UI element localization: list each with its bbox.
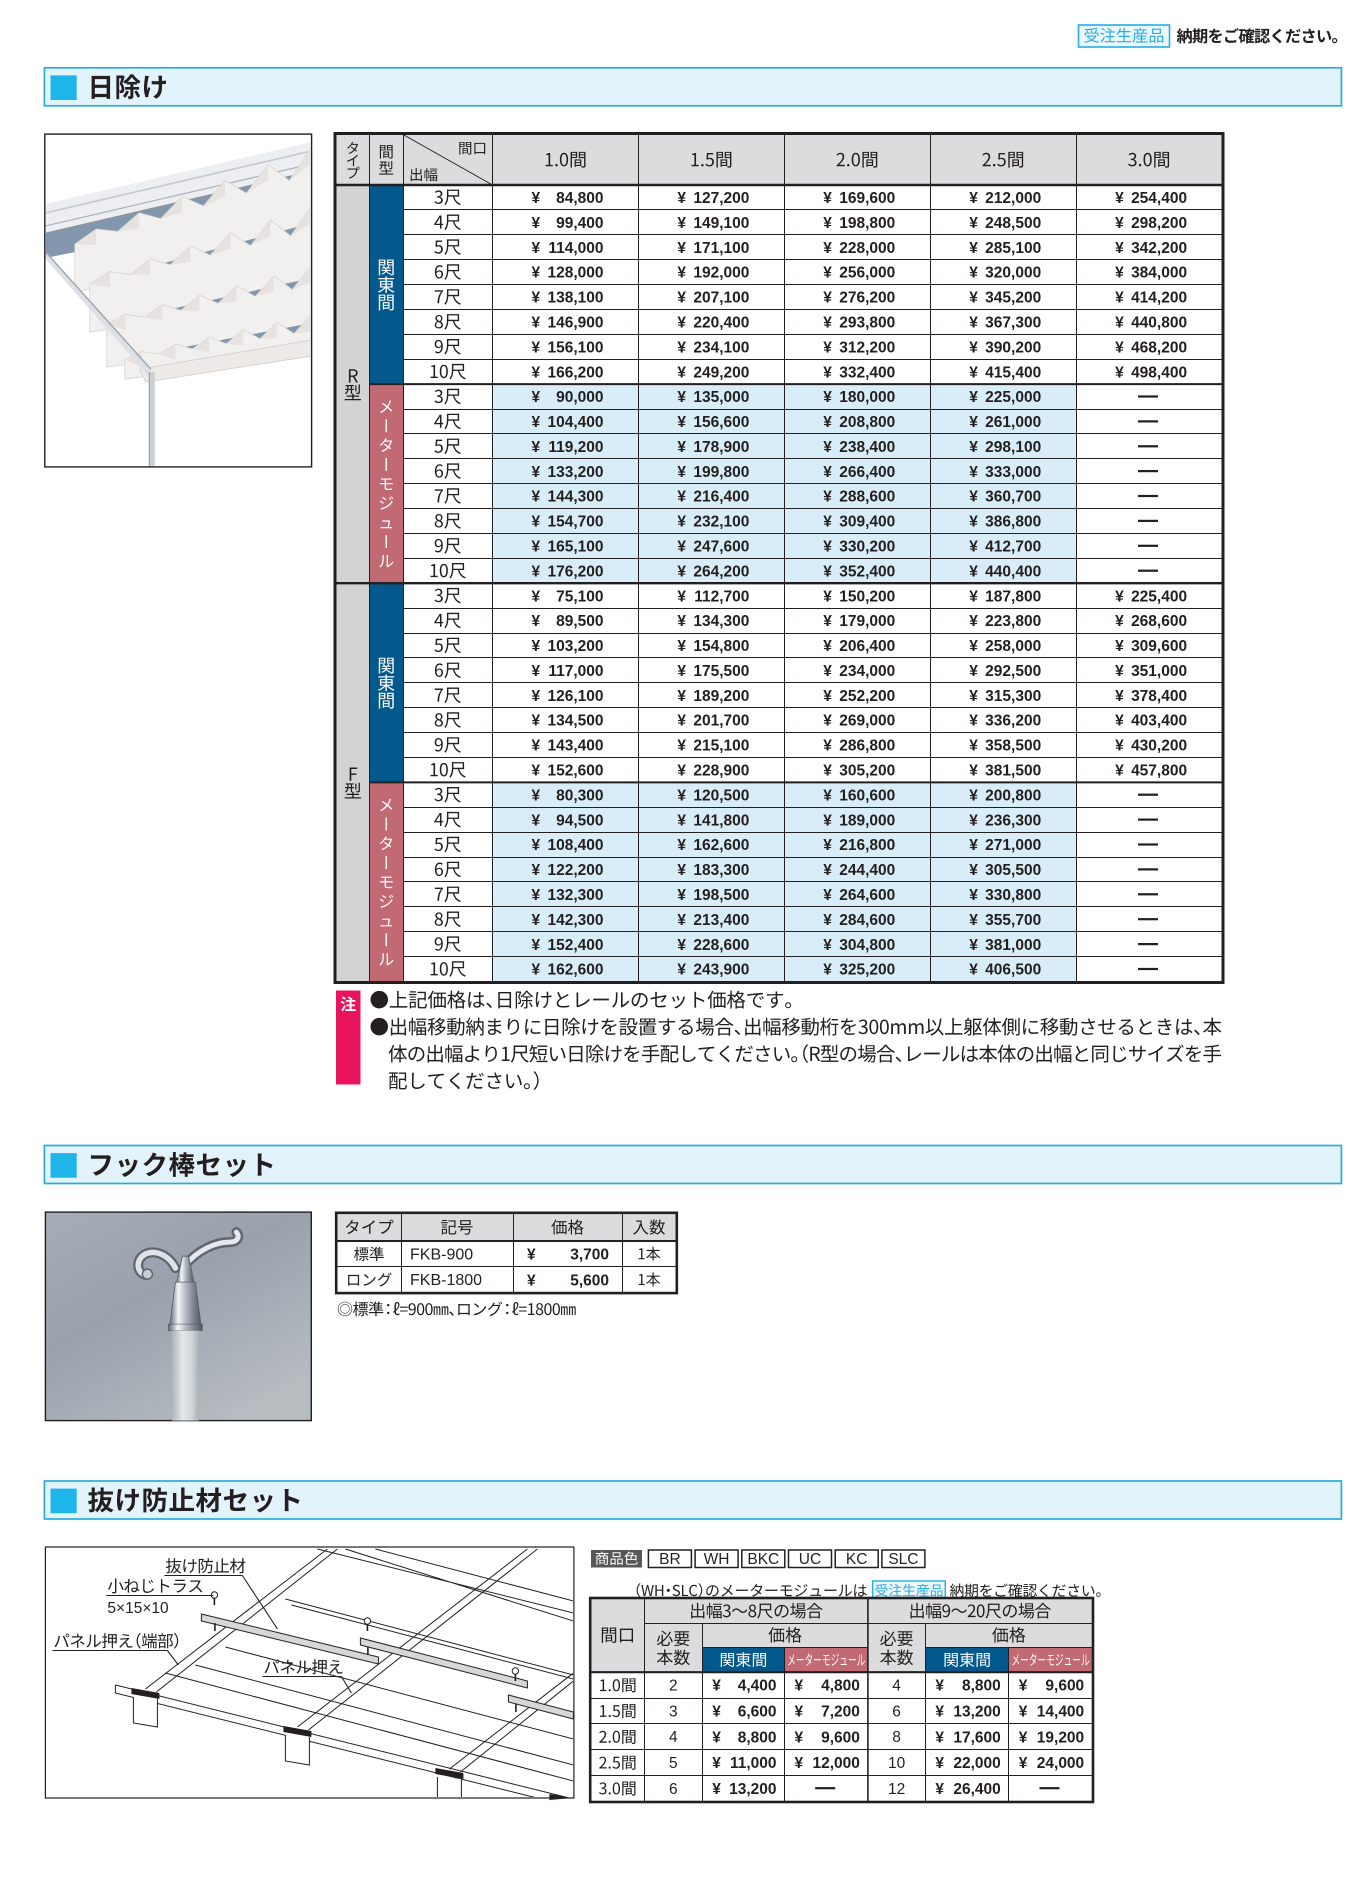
svg-text:198,500: 198,500 bbox=[693, 887, 749, 904]
svg-text:FKB-900: FKB-900 bbox=[410, 1246, 473, 1263]
svg-text:¥: ¥ bbox=[677, 364, 686, 381]
svg-text:252,200: 252,200 bbox=[839, 688, 895, 705]
svg-text:367,300: 367,300 bbox=[985, 315, 1041, 332]
svg-text:120,500: 120,500 bbox=[693, 787, 749, 804]
svg-text:¥: ¥ bbox=[1115, 713, 1124, 730]
svg-text:¥: ¥ bbox=[823, 837, 832, 854]
svg-text:¥: ¥ bbox=[823, 613, 832, 630]
svg-text:381,500: 381,500 bbox=[985, 763, 1041, 780]
svg-text:99,400: 99,400 bbox=[556, 215, 603, 232]
svg-text:¥: ¥ bbox=[823, 539, 832, 556]
svg-text:¥: ¥ bbox=[823, 464, 832, 481]
svg-text:293,800: 293,800 bbox=[839, 315, 895, 332]
svg-text:¥: ¥ bbox=[677, 489, 686, 506]
svg-text:8: 8 bbox=[892, 1729, 901, 1746]
svg-text:¥: ¥ bbox=[1019, 1678, 1028, 1695]
svg-text:¥: ¥ bbox=[969, 190, 978, 207]
svg-text:183,300: 183,300 bbox=[693, 862, 749, 879]
svg-text:¥: ¥ bbox=[823, 663, 832, 680]
svg-text:¥: ¥ bbox=[712, 1704, 721, 1721]
svg-text:122,200: 122,200 bbox=[547, 862, 603, 879]
svg-text:268,600: 268,600 bbox=[1131, 613, 1187, 630]
svg-text:22,000: 22,000 bbox=[953, 1755, 1000, 1772]
svg-text:¥: ¥ bbox=[1115, 638, 1124, 655]
svg-text:198,800: 198,800 bbox=[839, 215, 895, 232]
svg-text:276,200: 276,200 bbox=[839, 290, 895, 307]
svg-text:223,800: 223,800 bbox=[985, 613, 1041, 630]
svg-text:¥: ¥ bbox=[677, 613, 686, 630]
svg-text:228,000: 228,000 bbox=[839, 240, 895, 257]
svg-text:360,700: 360,700 bbox=[985, 489, 1041, 506]
svg-text:¥: ¥ bbox=[527, 1247, 536, 1264]
svg-text:¥: ¥ bbox=[677, 862, 686, 879]
svg-text:¥: ¥ bbox=[1115, 688, 1124, 705]
svg-text:¥: ¥ bbox=[677, 215, 686, 232]
svg-text:¥: ¥ bbox=[823, 563, 832, 580]
svg-text:¥: ¥ bbox=[969, 862, 978, 879]
svg-text:¥: ¥ bbox=[823, 389, 832, 406]
svg-text:119,200: 119,200 bbox=[548, 439, 603, 456]
svg-text:¥: ¥ bbox=[795, 1678, 804, 1695]
svg-text:249,200: 249,200 bbox=[693, 364, 749, 381]
svg-text:298,200: 298,200 bbox=[1131, 215, 1187, 232]
svg-text:17,600: 17,600 bbox=[953, 1729, 1000, 1746]
svg-text:UC: UC bbox=[799, 1551, 821, 1568]
svg-text:¥: ¥ bbox=[823, 414, 832, 431]
svg-text:¥: ¥ bbox=[677, 787, 686, 804]
svg-text:FKB-1800: FKB-1800 bbox=[410, 1272, 482, 1289]
svg-text:¥: ¥ bbox=[969, 887, 978, 904]
svg-text:244,400: 244,400 bbox=[839, 862, 895, 879]
svg-text:180,000: 180,000 bbox=[839, 389, 895, 406]
svg-text:90,000: 90,000 bbox=[556, 389, 603, 406]
svg-text:132,300: 132,300 bbox=[547, 887, 603, 904]
svg-text:¥: ¥ bbox=[532, 464, 541, 481]
svg-text:¥: ¥ bbox=[712, 1678, 721, 1695]
svg-text:¥: ¥ bbox=[1115, 339, 1124, 356]
svg-text:¥: ¥ bbox=[532, 240, 541, 257]
svg-text:440,400: 440,400 bbox=[985, 563, 1041, 580]
svg-text:¥: ¥ bbox=[1115, 265, 1124, 282]
svg-text:¥: ¥ bbox=[969, 563, 978, 580]
svg-text:304,800: 304,800 bbox=[839, 937, 895, 954]
svg-text:403,400: 403,400 bbox=[1131, 713, 1187, 730]
svg-text:381,000: 381,000 bbox=[985, 937, 1041, 954]
svg-text:94,500: 94,500 bbox=[556, 812, 603, 829]
svg-text:414,200: 414,200 bbox=[1131, 290, 1187, 307]
svg-text:4: 4 bbox=[669, 1729, 678, 1746]
svg-text:¥: ¥ bbox=[532, 962, 541, 979]
svg-text:¥: ¥ bbox=[1115, 290, 1124, 307]
svg-text:¥: ¥ bbox=[677, 962, 686, 979]
svg-text:84,800: 84,800 bbox=[556, 190, 603, 207]
svg-text:¥: ¥ bbox=[532, 937, 541, 954]
svg-text:¥: ¥ bbox=[532, 763, 541, 780]
svg-text:234,000: 234,000 bbox=[839, 663, 895, 680]
svg-text:¥: ¥ bbox=[823, 937, 832, 954]
svg-text:201,700: 201,700 bbox=[693, 713, 749, 730]
svg-text:178,900: 178,900 bbox=[693, 439, 749, 456]
svg-text:5×15×10: 5×15×10 bbox=[107, 1600, 169, 1617]
svg-text:309,400: 309,400 bbox=[839, 514, 895, 531]
svg-text:¥: ¥ bbox=[969, 812, 978, 829]
svg-text:3: 3 bbox=[669, 1703, 678, 1720]
svg-text:¥: ¥ bbox=[532, 265, 541, 282]
svg-text:¥: ¥ bbox=[677, 937, 686, 954]
svg-text:228,900: 228,900 bbox=[693, 763, 749, 780]
svg-text:12,000: 12,000 bbox=[812, 1755, 859, 1772]
svg-text:¥: ¥ bbox=[823, 439, 832, 456]
svg-text:¥: ¥ bbox=[532, 663, 541, 680]
svg-text:¥: ¥ bbox=[969, 364, 978, 381]
svg-text:234,100: 234,100 bbox=[693, 339, 749, 356]
svg-text:¥: ¥ bbox=[532, 787, 541, 804]
svg-text:¥: ¥ bbox=[677, 812, 686, 829]
svg-text:¥: ¥ bbox=[935, 1678, 944, 1695]
svg-text:¥: ¥ bbox=[532, 489, 541, 506]
svg-text:¥: ¥ bbox=[527, 1272, 536, 1289]
svg-text:103,200: 103,200 bbox=[547, 638, 603, 655]
svg-text:¥: ¥ bbox=[532, 439, 541, 456]
svg-text:¥: ¥ bbox=[823, 763, 832, 780]
svg-text:351,000: 351,000 bbox=[1131, 663, 1187, 680]
svg-text:199,800: 199,800 bbox=[693, 464, 749, 481]
svg-text:¥: ¥ bbox=[532, 638, 541, 655]
svg-text:¥: ¥ bbox=[1115, 663, 1124, 680]
svg-text:¥: ¥ bbox=[677, 464, 686, 481]
svg-text:¥: ¥ bbox=[823, 688, 832, 705]
svg-text:¥: ¥ bbox=[677, 887, 686, 904]
svg-text:208,800: 208,800 bbox=[839, 414, 895, 431]
svg-text:156,600: 156,600 bbox=[693, 414, 749, 431]
svg-text:¥: ¥ bbox=[969, 389, 978, 406]
svg-text:162,600: 162,600 bbox=[547, 962, 603, 979]
svg-text:SLC: SLC bbox=[888, 1551, 918, 1568]
svg-text:¥: ¥ bbox=[969, 962, 978, 979]
svg-text:¥: ¥ bbox=[677, 912, 686, 929]
svg-text:298,100: 298,100 bbox=[985, 439, 1041, 456]
svg-text:¥: ¥ bbox=[935, 1781, 944, 1798]
svg-text:165,100: 165,100 bbox=[547, 539, 603, 556]
svg-text:¥: ¥ bbox=[677, 414, 686, 431]
svg-text:¥: ¥ bbox=[532, 588, 541, 605]
svg-text:¥: ¥ bbox=[532, 713, 541, 730]
svg-text:286,800: 286,800 bbox=[839, 738, 895, 755]
svg-text:457,800: 457,800 bbox=[1131, 763, 1187, 780]
svg-text:¥: ¥ bbox=[677, 439, 686, 456]
svg-text:¥: ¥ bbox=[532, 862, 541, 879]
svg-text:¥: ¥ bbox=[823, 265, 832, 282]
svg-text:¥: ¥ bbox=[935, 1729, 944, 1746]
svg-text:¥: ¥ bbox=[823, 862, 832, 879]
svg-text:¥: ¥ bbox=[532, 315, 541, 332]
svg-text:¥: ¥ bbox=[823, 812, 832, 829]
svg-text:¥: ¥ bbox=[532, 688, 541, 705]
svg-text:89,500: 89,500 bbox=[556, 613, 603, 630]
svg-text:330,200: 330,200 bbox=[839, 539, 895, 556]
svg-text:¥: ¥ bbox=[677, 588, 686, 605]
svg-text:292,500: 292,500 bbox=[985, 663, 1041, 680]
svg-text:¥: ¥ bbox=[677, 539, 686, 556]
svg-text:288,600: 288,600 bbox=[839, 489, 895, 506]
svg-text:320,000: 320,000 bbox=[985, 265, 1041, 282]
svg-text:BKC: BKC bbox=[747, 1551, 779, 1568]
svg-text:117,000: 117,000 bbox=[548, 663, 603, 680]
svg-text:¥: ¥ bbox=[823, 315, 832, 332]
svg-text:¥: ¥ bbox=[823, 339, 832, 356]
svg-text:176,200: 176,200 bbox=[547, 563, 603, 580]
svg-text:¥: ¥ bbox=[677, 514, 686, 531]
svg-text:¥: ¥ bbox=[969, 688, 978, 705]
svg-text:¥: ¥ bbox=[532, 563, 541, 580]
svg-text:¥: ¥ bbox=[677, 389, 686, 406]
svg-text:¥: ¥ bbox=[677, 265, 686, 282]
svg-text:¥: ¥ bbox=[969, 763, 978, 780]
svg-text:¥: ¥ bbox=[532, 812, 541, 829]
svg-text:345,200: 345,200 bbox=[985, 290, 1041, 307]
svg-text:228,600: 228,600 bbox=[693, 937, 749, 954]
svg-text:336,200: 336,200 bbox=[985, 713, 1041, 730]
svg-text:¥: ¥ bbox=[677, 713, 686, 730]
svg-text:¥: ¥ bbox=[969, 489, 978, 506]
svg-text:266,400: 266,400 bbox=[839, 464, 895, 481]
svg-text:206,400: 206,400 bbox=[839, 638, 895, 655]
svg-text:¥: ¥ bbox=[823, 215, 832, 232]
svg-text:¥: ¥ bbox=[969, 787, 978, 804]
svg-text:135,000: 135,000 bbox=[693, 389, 749, 406]
svg-text:156,100: 156,100 bbox=[547, 339, 603, 356]
svg-text:355,700: 355,700 bbox=[985, 912, 1041, 929]
svg-text:¥: ¥ bbox=[969, 464, 978, 481]
svg-text:412,700: 412,700 bbox=[985, 539, 1041, 556]
svg-text:220,400: 220,400 bbox=[693, 315, 749, 332]
svg-text:¥: ¥ bbox=[823, 190, 832, 207]
svg-text:¥: ¥ bbox=[823, 738, 832, 755]
svg-text:¥: ¥ bbox=[823, 514, 832, 531]
svg-text:¥: ¥ bbox=[823, 787, 832, 804]
svg-text:114,000: 114,000 bbox=[548, 240, 603, 257]
svg-text:¥: ¥ bbox=[532, 912, 541, 929]
svg-text:264,200: 264,200 bbox=[693, 563, 749, 580]
svg-text:26,400: 26,400 bbox=[953, 1781, 1000, 1798]
svg-text:325,200: 325,200 bbox=[839, 962, 895, 979]
svg-text:¥: ¥ bbox=[969, 339, 978, 356]
svg-text:171,100: 171,100 bbox=[693, 240, 749, 257]
svg-text:¥: ¥ bbox=[712, 1755, 721, 1772]
svg-text:¥: ¥ bbox=[677, 339, 686, 356]
svg-text:104,400: 104,400 bbox=[547, 414, 603, 431]
svg-text:4,400: 4,400 bbox=[738, 1678, 777, 1695]
svg-text:207,100: 207,100 bbox=[693, 290, 749, 307]
svg-text:¥: ¥ bbox=[795, 1704, 804, 1721]
svg-text:212,000: 212,000 bbox=[985, 190, 1041, 207]
svg-text:352,400: 352,400 bbox=[839, 563, 895, 580]
svg-text:179,000: 179,000 bbox=[839, 613, 895, 630]
svg-text:¥: ¥ bbox=[969, 588, 978, 605]
svg-text:¥: ¥ bbox=[1115, 215, 1124, 232]
svg-text:¥: ¥ bbox=[823, 240, 832, 257]
svg-text:¥: ¥ bbox=[969, 414, 978, 431]
svg-text:248,500: 248,500 bbox=[985, 215, 1041, 232]
svg-text:80,300: 80,300 bbox=[556, 787, 603, 804]
svg-text:134,300: 134,300 bbox=[693, 613, 749, 630]
svg-text:¥: ¥ bbox=[1115, 613, 1124, 630]
svg-text:238,400: 238,400 bbox=[839, 439, 895, 456]
svg-text:390,200: 390,200 bbox=[985, 339, 1041, 356]
svg-text:236,300: 236,300 bbox=[985, 812, 1041, 829]
svg-text:261,000: 261,000 bbox=[985, 414, 1041, 431]
svg-text:384,000: 384,000 bbox=[1131, 265, 1187, 282]
svg-text:¥: ¥ bbox=[1115, 763, 1124, 780]
svg-text:216,400: 216,400 bbox=[693, 489, 749, 506]
svg-text:¥: ¥ bbox=[969, 439, 978, 456]
svg-text:430,200: 430,200 bbox=[1131, 738, 1187, 755]
svg-text:¥: ¥ bbox=[532, 389, 541, 406]
svg-text:108,400: 108,400 bbox=[547, 837, 603, 854]
svg-text:¥: ¥ bbox=[969, 663, 978, 680]
svg-text:169,600: 169,600 bbox=[839, 190, 895, 207]
svg-text:¥: ¥ bbox=[823, 638, 832, 655]
svg-text:¥: ¥ bbox=[795, 1729, 804, 1746]
svg-text:330,800: 330,800 bbox=[985, 887, 1041, 904]
svg-text:8,800: 8,800 bbox=[962, 1678, 1001, 1695]
svg-text:149,100: 149,100 bbox=[693, 215, 749, 232]
svg-text:215,100: 215,100 bbox=[693, 738, 749, 755]
svg-text:358,500: 358,500 bbox=[985, 738, 1041, 755]
svg-text:333,000: 333,000 bbox=[985, 464, 1041, 481]
svg-text:¥: ¥ bbox=[823, 489, 832, 506]
svg-text:¥: ¥ bbox=[532, 215, 541, 232]
svg-text:¥: ¥ bbox=[677, 290, 686, 307]
svg-text:¥: ¥ bbox=[677, 638, 686, 655]
svg-text:160,600: 160,600 bbox=[839, 787, 895, 804]
svg-text:112,700: 112,700 bbox=[694, 588, 749, 605]
svg-text:187,800: 187,800 bbox=[985, 588, 1041, 605]
svg-text:¥: ¥ bbox=[532, 414, 541, 431]
svg-text:¥: ¥ bbox=[823, 290, 832, 307]
svg-text:¥: ¥ bbox=[677, 688, 686, 705]
svg-text:KC: KC bbox=[846, 1551, 868, 1568]
svg-text:440,800: 440,800 bbox=[1131, 315, 1187, 332]
svg-text:11,000: 11,000 bbox=[730, 1755, 777, 1772]
svg-text:468,200: 468,200 bbox=[1131, 339, 1187, 356]
svg-text:225,400: 225,400 bbox=[1131, 588, 1187, 605]
svg-text:¥: ¥ bbox=[823, 713, 832, 730]
svg-text:75,100: 75,100 bbox=[556, 588, 603, 605]
svg-text:¥: ¥ bbox=[677, 563, 686, 580]
svg-text:¥: ¥ bbox=[1115, 315, 1124, 332]
svg-text:127,200: 127,200 bbox=[693, 190, 749, 207]
svg-text:146,900: 146,900 bbox=[547, 315, 603, 332]
svg-text:¥: ¥ bbox=[969, 937, 978, 954]
svg-text:143,400: 143,400 bbox=[547, 738, 603, 755]
svg-text:¥: ¥ bbox=[712, 1729, 721, 1746]
svg-text:¥: ¥ bbox=[969, 613, 978, 630]
svg-text:¥: ¥ bbox=[1115, 588, 1124, 605]
svg-text:138,100: 138,100 bbox=[547, 290, 603, 307]
svg-text:24,000: 24,000 bbox=[1037, 1755, 1084, 1772]
svg-text:¥: ¥ bbox=[969, 713, 978, 730]
svg-text:254,400: 254,400 bbox=[1131, 190, 1187, 207]
svg-text:7,200: 7,200 bbox=[821, 1704, 860, 1721]
svg-text:232,100: 232,100 bbox=[693, 514, 749, 531]
svg-text:133,200: 133,200 bbox=[547, 464, 603, 481]
svg-text:¥: ¥ bbox=[823, 962, 832, 979]
svg-text:¥: ¥ bbox=[969, 240, 978, 257]
svg-text:142,300: 142,300 bbox=[547, 912, 603, 929]
svg-text:¥: ¥ bbox=[823, 364, 832, 381]
svg-text:378,400: 378,400 bbox=[1131, 688, 1187, 705]
svg-text:WH: WH bbox=[704, 1551, 730, 1568]
svg-text:309,600: 309,600 bbox=[1131, 638, 1187, 655]
svg-text:285,100: 285,100 bbox=[985, 240, 1041, 257]
svg-text:166,200: 166,200 bbox=[547, 364, 603, 381]
svg-text:258,000: 258,000 bbox=[985, 638, 1041, 655]
svg-text:144,300: 144,300 bbox=[547, 489, 603, 506]
svg-text:¥: ¥ bbox=[969, 514, 978, 531]
svg-text:13,200: 13,200 bbox=[953, 1704, 1000, 1721]
svg-text:¥: ¥ bbox=[532, 290, 541, 307]
svg-text:¥: ¥ bbox=[1115, 240, 1124, 257]
svg-text:¥: ¥ bbox=[532, 190, 541, 207]
svg-text:315,300: 315,300 bbox=[985, 688, 1041, 705]
svg-text:¥: ¥ bbox=[1115, 738, 1124, 755]
svg-text:¥: ¥ bbox=[823, 887, 832, 904]
svg-text:406,500: 406,500 bbox=[985, 962, 1041, 979]
svg-text:12: 12 bbox=[888, 1781, 905, 1798]
svg-text:¥: ¥ bbox=[532, 339, 541, 356]
svg-text:152,400: 152,400 bbox=[547, 937, 603, 954]
svg-text:152,600: 152,600 bbox=[547, 763, 603, 780]
svg-text:213,400: 213,400 bbox=[693, 912, 749, 929]
svg-text:134,500: 134,500 bbox=[547, 713, 603, 730]
svg-text:¥: ¥ bbox=[532, 514, 541, 531]
svg-text:¥: ¥ bbox=[677, 190, 686, 207]
svg-text:¥: ¥ bbox=[823, 588, 832, 605]
svg-text:¥: ¥ bbox=[969, 315, 978, 332]
svg-text:¥: ¥ bbox=[677, 663, 686, 680]
svg-text:247,600: 247,600 bbox=[693, 539, 749, 556]
svg-text:¥: ¥ bbox=[532, 738, 541, 755]
svg-text:154,700: 154,700 bbox=[547, 514, 603, 531]
svg-text:189,000: 189,000 bbox=[839, 812, 895, 829]
svg-text:¥: ¥ bbox=[532, 364, 541, 381]
svg-text:6: 6 bbox=[669, 1781, 678, 1798]
svg-text:¥: ¥ bbox=[1115, 190, 1124, 207]
svg-text:126,100: 126,100 bbox=[547, 688, 603, 705]
svg-text:256,000: 256,000 bbox=[839, 265, 895, 282]
svg-text:¥: ¥ bbox=[795, 1755, 804, 1772]
svg-text:¥: ¥ bbox=[677, 763, 686, 780]
svg-text:150,200: 150,200 bbox=[839, 588, 895, 605]
svg-text:¥: ¥ bbox=[823, 912, 832, 929]
svg-text:¥: ¥ bbox=[1115, 364, 1124, 381]
svg-text:¥: ¥ bbox=[969, 912, 978, 929]
svg-text:6,600: 6,600 bbox=[738, 1704, 777, 1721]
svg-text:264,600: 264,600 bbox=[839, 887, 895, 904]
svg-text:¥: ¥ bbox=[969, 265, 978, 282]
svg-text:¥: ¥ bbox=[677, 240, 686, 257]
svg-text:342,200: 342,200 bbox=[1131, 240, 1187, 257]
svg-text:128,000: 128,000 bbox=[547, 265, 603, 282]
svg-text:8,800: 8,800 bbox=[738, 1729, 777, 1746]
svg-text:386,800: 386,800 bbox=[985, 514, 1041, 531]
svg-text:¥: ¥ bbox=[1019, 1755, 1028, 1772]
svg-text:3,700: 3,700 bbox=[570, 1247, 609, 1264]
svg-text:269,000: 269,000 bbox=[839, 713, 895, 730]
svg-text:¥: ¥ bbox=[935, 1755, 944, 1772]
svg-text:305,200: 305,200 bbox=[839, 763, 895, 780]
